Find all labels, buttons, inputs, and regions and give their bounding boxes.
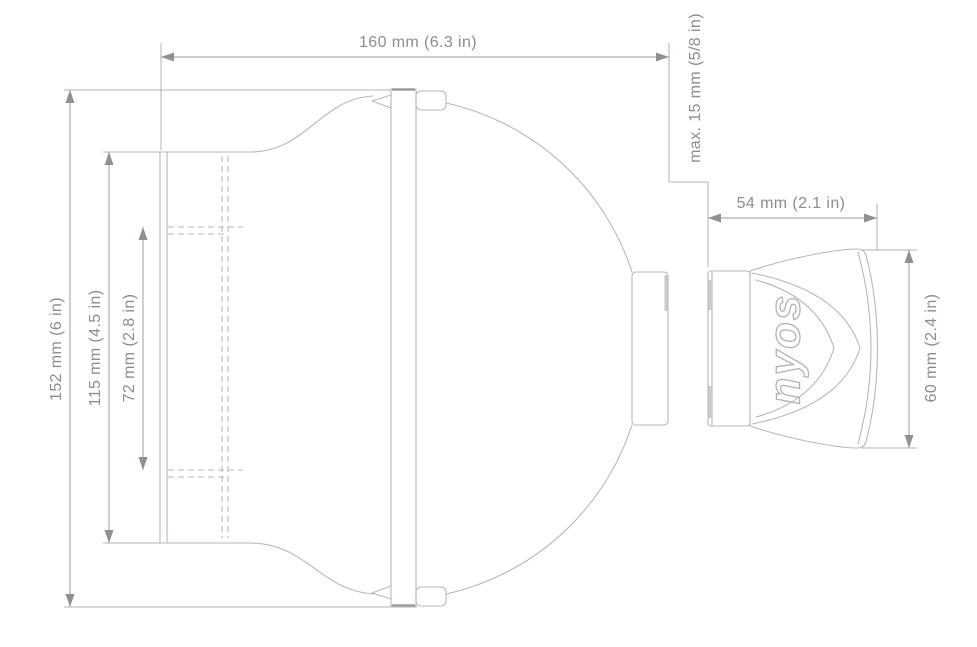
arrow-right-icon bbox=[656, 53, 669, 62]
dim-remote-width-label: 54 mm (2.1 in) bbox=[737, 195, 846, 212]
remote-mount-plate bbox=[708, 271, 750, 426]
arrow-up-icon bbox=[139, 227, 148, 240]
arrow-up-icon bbox=[905, 250, 914, 263]
dim-body-height-label: 115 mm (4.5 in) bbox=[87, 290, 104, 407]
arrow-down-icon bbox=[105, 530, 114, 543]
dome-arc-bottom bbox=[446, 425, 632, 594]
brand-logo: nyos bbox=[761, 294, 810, 405]
arrow-left-icon bbox=[161, 53, 174, 62]
connector-block bbox=[632, 272, 668, 425]
shell-top-curve bbox=[251, 96, 373, 152]
bottom-clamp-block bbox=[416, 587, 446, 606]
remote-light-unit: nyos bbox=[708, 249, 878, 448]
dim-total-width-label: 160 mm (6.3 in) bbox=[359, 34, 477, 51]
dim-total-height-label: 152 mm (6 in) bbox=[48, 297, 65, 401]
connector-shading bbox=[665, 275, 668, 311]
dome-arc-top bbox=[446, 103, 632, 272]
dim-mount-gap-label: max. 15 mm (5/8 in) bbox=[687, 13, 704, 163]
arrow-down-icon bbox=[66, 594, 75, 607]
dim-inner-height-label: 72 mm (2.8 in) bbox=[121, 294, 138, 403]
hidden-feature-lines bbox=[168, 156, 243, 538]
shell-bottom-lip bbox=[372, 586, 391, 599]
remote-plate-shading-bottom bbox=[709, 386, 712, 418]
top-clamp-block bbox=[416, 91, 446, 110]
arrow-down-icon bbox=[905, 435, 914, 448]
technical-drawing: nyos 160 mm bbox=[0, 0, 977, 647]
arrow-down-icon bbox=[139, 457, 148, 470]
shell-top-lip bbox=[372, 95, 391, 108]
arrow-right-icon bbox=[864, 214, 877, 223]
arrow-up-icon bbox=[66, 90, 75, 103]
main-unit-outline bbox=[160, 89, 668, 606]
dimension-drawing-page: nyos 160 mm bbox=[0, 0, 977, 647]
remote-plate-shading-top bbox=[709, 280, 712, 310]
arrow-up-icon bbox=[105, 152, 114, 165]
mount-strap bbox=[391, 89, 416, 606]
arrow-left-icon bbox=[708, 214, 721, 223]
shell-bottom-curve bbox=[251, 543, 373, 594]
dim-remote-height-label: 60 mm (2.4 in) bbox=[923, 294, 940, 403]
